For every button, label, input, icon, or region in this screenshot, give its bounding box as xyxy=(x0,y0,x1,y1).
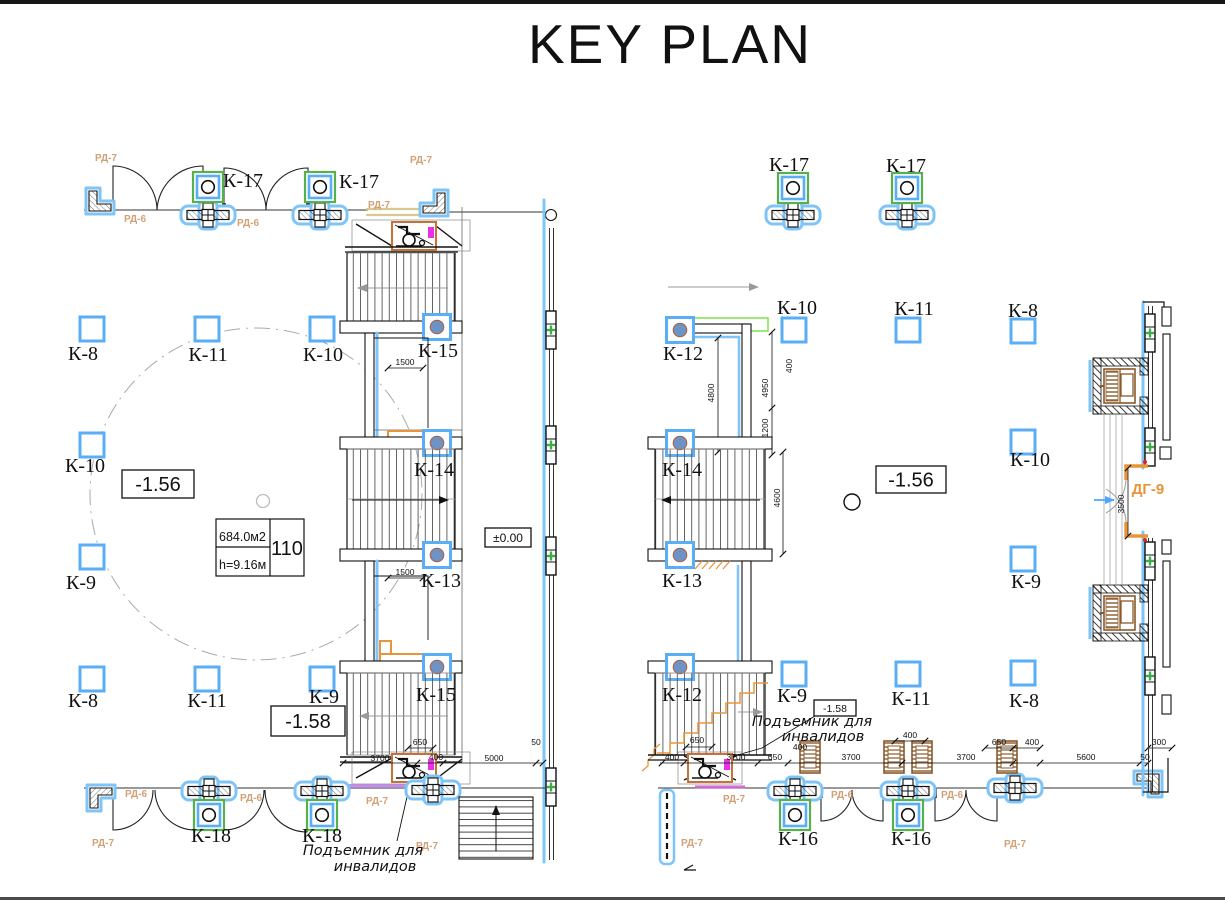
door-schedule-tag: РД-6 xyxy=(831,790,853,801)
grid-column-label: К-11 xyxy=(187,690,226,712)
small-circle-marker xyxy=(257,495,270,508)
door-swing xyxy=(852,790,883,821)
door-schedule-tag: РД-7 xyxy=(368,200,390,211)
dimension-label: 650 xyxy=(690,735,704,745)
dimension-label: 50 xyxy=(1140,752,1150,762)
lift-note: Подъемник для xyxy=(752,714,872,730)
elevation-marker: -1.56 xyxy=(122,470,194,498)
grid-column-label: К-9 xyxy=(1011,571,1041,593)
door-schedule-tag: РД-7 xyxy=(95,153,117,164)
dimension-label: 1500 xyxy=(396,357,415,367)
door-schedule-tag: РД-6 xyxy=(125,789,147,800)
elevation-markers-layer: -1.56-1.58±0.00-1.56-1.58 xyxy=(122,466,946,736)
grid-column-label: К-9 xyxy=(309,686,339,708)
key-plan-sheet: 684.0м2 h=9.16м 110 xyxy=(0,0,1225,900)
svg-text:±0.00: ±0.00 xyxy=(493,531,523,545)
dimension-label: 400 xyxy=(784,359,794,373)
dimension-label: 1200 xyxy=(760,418,770,437)
grid-column-label: К-8 xyxy=(1008,300,1038,322)
door-schedule-tag: РД-7 xyxy=(1004,839,1026,850)
door-swing xyxy=(113,166,157,210)
svg-text:-1.58: -1.58 xyxy=(823,703,847,715)
door-schedule-tag: РД-6 xyxy=(237,218,259,229)
elevation-marker: -1.58 xyxy=(271,706,345,736)
room-area: 684.0м2 xyxy=(219,530,266,544)
room-number: 110 xyxy=(271,538,303,560)
left-plan-right-wall xyxy=(544,200,556,862)
door-schedule-tag: РД-6 xyxy=(941,790,963,801)
door-schedule-tag: РД-7 xyxy=(410,155,432,166)
grid-column-label: К-12 xyxy=(663,343,703,365)
grid-column-label: К-13 xyxy=(662,570,702,592)
dimension-label: 3500 xyxy=(1116,494,1126,513)
door-schedule-tag: РД-7 xyxy=(366,796,388,807)
north-tick xyxy=(684,865,696,870)
grid-column-label: К-11 xyxy=(188,344,227,366)
grid-column-label: К-10 xyxy=(65,455,105,477)
grid-column-label: К-10 xyxy=(777,297,817,319)
grid-column-label: К-15 xyxy=(418,340,458,362)
right-plan xyxy=(642,173,1175,870)
dimension-label: 1500 xyxy=(396,567,415,577)
dimension-label: 3700 xyxy=(842,752,861,762)
grid-column-label: К-18 xyxy=(191,825,231,847)
grid-column-label: К-15 xyxy=(416,684,456,706)
lift-note: инвалидов xyxy=(334,859,416,875)
grid-column-label: К-17 xyxy=(339,171,379,193)
grid-column-label: К-8 xyxy=(1009,690,1039,712)
door-jamb xyxy=(1126,466,1148,480)
grid-column-label: К-13 xyxy=(421,570,461,592)
dimension-label: 650 xyxy=(413,737,427,747)
dimension-label: 4800 xyxy=(706,383,716,402)
dimension-label: 3700 xyxy=(957,752,976,762)
floor-plan-drawing: 684.0м2 h=9.16м 110 xyxy=(0,0,1225,900)
dimension-label: 400 xyxy=(793,742,807,752)
orange-hatch xyxy=(695,561,730,569)
dimension-label: 50 xyxy=(531,737,541,747)
grid-column-label: К-14 xyxy=(414,459,454,481)
elevation-marker: -1.56 xyxy=(876,466,946,493)
circle-marker xyxy=(844,494,860,510)
elevation-marker: ±0.00 xyxy=(485,528,531,547)
lift-note: Подъемник для xyxy=(303,843,423,859)
grid-column-label: К-11 xyxy=(894,298,933,320)
door-schedule-tag: РД-7 xyxy=(723,794,745,805)
door-group-label: ДГ-9 xyxy=(1132,481,1165,498)
room-tag: 684.0м2 h=9.16м 110 xyxy=(216,519,304,576)
left-plan-top-wall xyxy=(84,166,557,229)
grid-column-label: К-16 xyxy=(891,828,931,850)
dimension-label: 3700 xyxy=(371,753,390,763)
door-schedule-tag: РД-7 xyxy=(681,838,703,849)
svg-text:-1.56: -1.56 xyxy=(135,474,181,496)
dimension-label: 400 xyxy=(903,730,917,740)
dimension-label: 5600 xyxy=(1077,752,1096,762)
svg-text:-1.56: -1.56 xyxy=(888,470,934,492)
right-plan-right-wall xyxy=(1090,302,1171,795)
grid-column-label: К-16 xyxy=(778,828,818,850)
grid-column-label: К-11 xyxy=(891,688,930,710)
sheet-title: KEY PLAN xyxy=(528,12,812,76)
dimension-label: 300 xyxy=(1152,737,1166,747)
dimension-label: 400 xyxy=(665,752,679,762)
door-swing xyxy=(266,168,308,210)
dimension-label: 400 xyxy=(1025,737,1039,747)
grid-column-label: К-9 xyxy=(777,685,807,707)
grid-column-label: К-9 xyxy=(66,572,96,594)
dimension-label: 650 xyxy=(768,752,782,762)
svg-text:-1.58: -1.58 xyxy=(285,711,331,733)
grid-column-label: К-14 xyxy=(662,459,702,481)
dimension-label: 5000 xyxy=(485,753,504,763)
grid-column-label: К-10 xyxy=(303,344,343,366)
grid-column-label: К-17 xyxy=(886,155,926,177)
top-border-bar xyxy=(0,0,1225,4)
grid-column-label: К-17 xyxy=(769,154,809,176)
door-schedule-tag: РД-6 xyxy=(124,214,146,225)
grid-column-label: К-10 xyxy=(1010,449,1050,471)
room-height: h=9.16м xyxy=(219,558,266,572)
dimension-label: 4950 xyxy=(760,378,770,397)
grid-column-label: К-12 xyxy=(662,684,702,706)
dimension-label: 650 xyxy=(992,737,1006,747)
dimension-label: 3700 xyxy=(727,752,746,762)
dimension-label: 400 xyxy=(429,752,443,762)
dimension-label: 4600 xyxy=(772,488,782,507)
door-schedule-tag: РД-6 xyxy=(240,793,262,804)
grid-column-label: К-8 xyxy=(68,343,98,365)
door-schedule-tag: РД-7 xyxy=(92,838,114,849)
left-plan-stair-tower xyxy=(340,207,470,841)
grid-column-label: К-8 xyxy=(68,690,98,712)
door-jamb xyxy=(1126,522,1148,536)
grid-column-label: К-17 xyxy=(223,170,263,192)
